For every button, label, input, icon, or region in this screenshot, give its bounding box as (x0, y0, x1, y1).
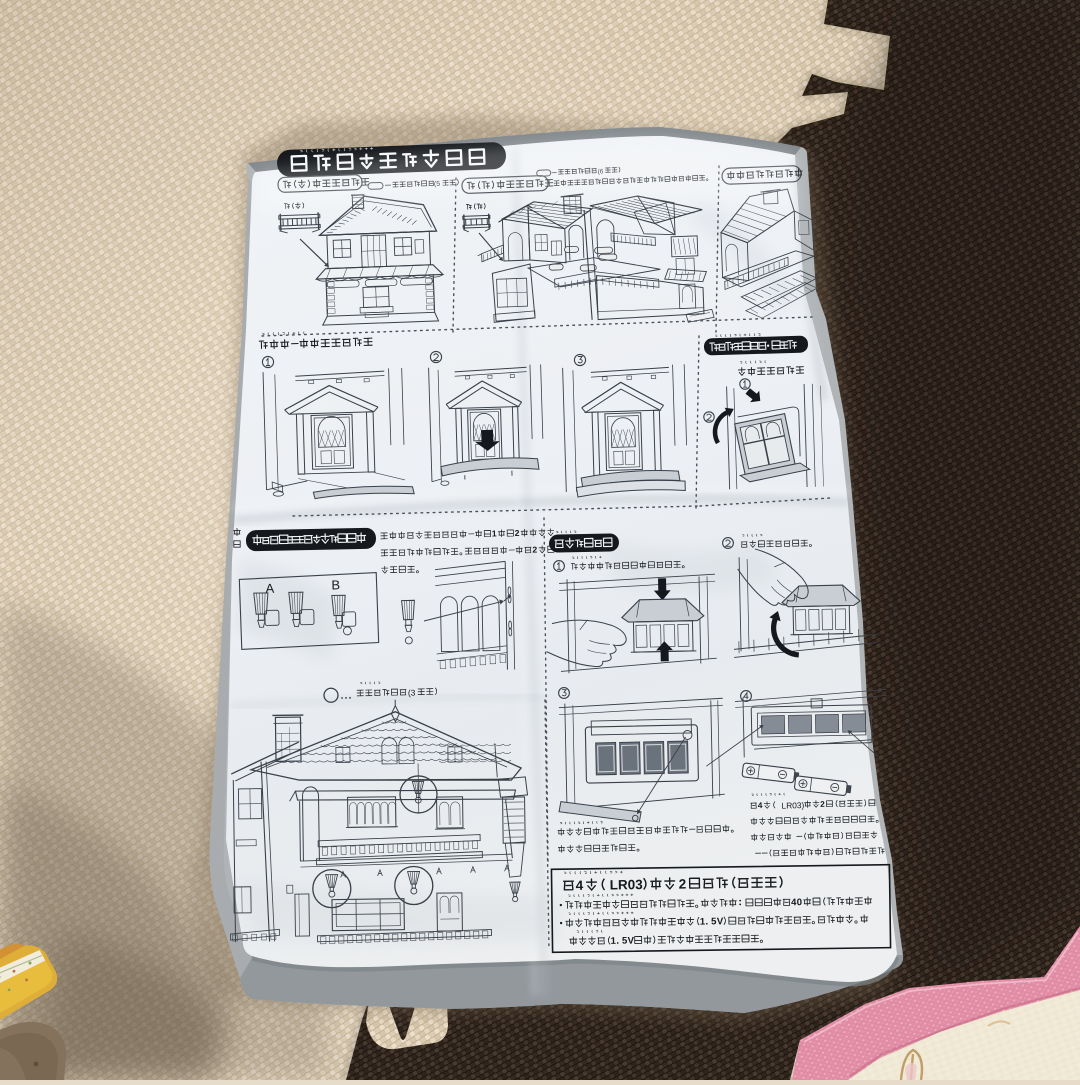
svg-text:B: B (331, 577, 340, 592)
svg-text:1: 1 (492, 528, 497, 538)
svg-text:V: V (628, 935, 635, 946)
svg-text:0: 0 (797, 897, 802, 908)
svg-text:2: 2 (532, 545, 537, 555)
svg-text:4: 4 (758, 801, 763, 810)
svg-text:2: 2 (679, 876, 687, 891)
svg-text:.: . (616, 936, 619, 947)
svg-text:4: 4 (576, 878, 584, 893)
svg-text:V: V (717, 916, 724, 927)
svg-text:.: . (705, 916, 708, 927)
svg-text:2: 2 (820, 800, 825, 809)
svg-text:2: 2 (515, 528, 520, 538)
svg-text:LR03: LR03 (610, 877, 644, 892)
svg-text:A: A (265, 581, 274, 596)
svg-text:LR03): LR03) (781, 800, 804, 810)
svg-text:(3: (3 (408, 687, 416, 697)
